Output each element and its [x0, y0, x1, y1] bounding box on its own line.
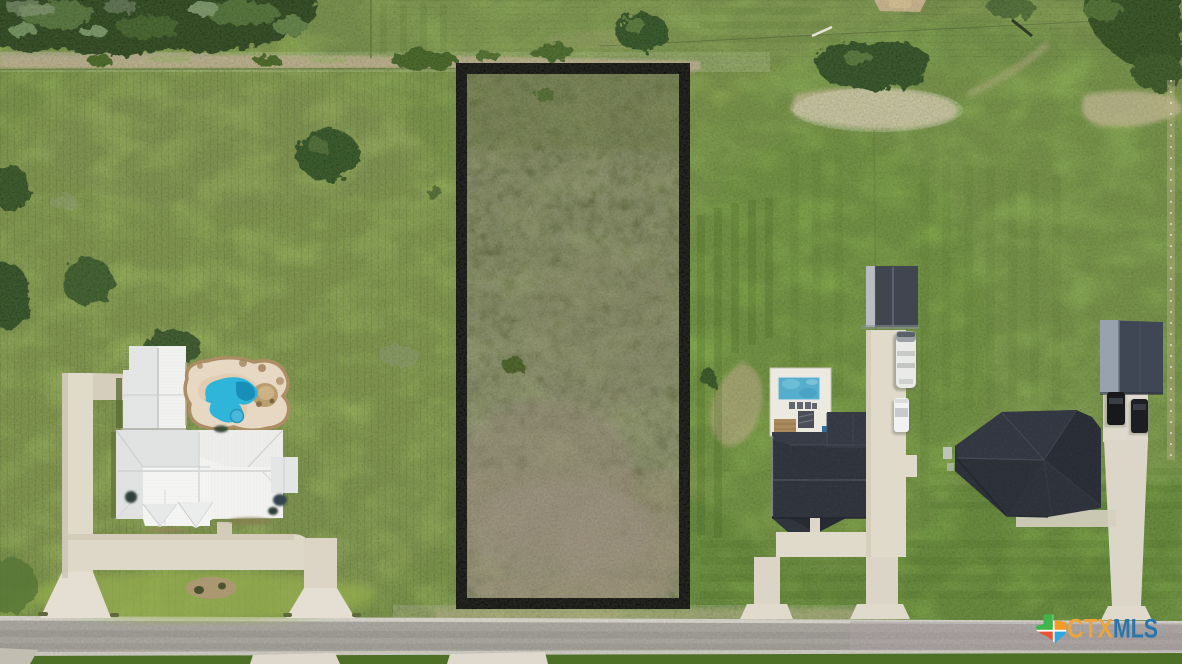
svg-text:MLS: MLS: [1113, 614, 1158, 644]
svg-text:CTX: CTX: [1067, 614, 1113, 644]
